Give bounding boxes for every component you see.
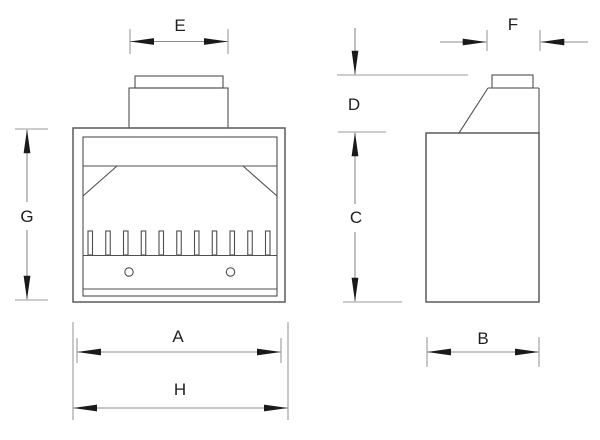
- front-right-throat-diagonal: [243, 166, 277, 196]
- grate-bar: [106, 231, 111, 255]
- dimension-c: C: [338, 132, 402, 302]
- dimension-label-e: E: [174, 16, 185, 35]
- grate-bar: [88, 231, 93, 255]
- dimension-label-b: B: [477, 329, 488, 348]
- front-chimney-cap: [135, 76, 223, 88]
- dimension-b: B: [427, 329, 539, 367]
- dimension-f: F: [440, 15, 588, 51]
- grate-bar: [212, 231, 217, 255]
- grate-bar: [248, 231, 253, 255]
- side-throat-slope: [459, 88, 488, 133]
- dimension-a: A: [73, 322, 288, 420]
- side-view: [426, 75, 539, 302]
- grate-bar: [141, 231, 146, 255]
- grate-bar: [230, 231, 235, 255]
- dimension-d: D: [337, 28, 468, 114]
- front-left-throat-diagonal: [83, 166, 117, 196]
- dimension-h: H: [74, 380, 288, 408]
- front-grate-bars: [88, 231, 270, 255]
- dimension-label-d: D: [348, 95, 360, 114]
- front-inner-body: [83, 137, 277, 296]
- fireplace-two-view-drawing: E G A H F D C: [0, 0, 600, 440]
- dimensional-drawing-canvas: E G A H F D C: [0, 0, 600, 440]
- grate-bar: [266, 231, 271, 255]
- dimension-g: G: [15, 129, 48, 300]
- grate-bar: [124, 231, 129, 255]
- dimension-label-g: G: [20, 207, 33, 226]
- front-chimney-flue: [129, 88, 228, 128]
- dimension-label-a: A: [172, 327, 184, 346]
- front-view: [73, 76, 285, 302]
- grate-bar: [159, 231, 164, 255]
- dimension-label-f: F: [508, 15, 518, 34]
- front-air-hole-left: [125, 268, 133, 276]
- grate-bar: [195, 231, 200, 255]
- grate-bar: [177, 231, 182, 255]
- front-air-hole-right: [226, 268, 234, 276]
- side-body: [426, 133, 539, 302]
- side-chimney-cap: [492, 75, 533, 88]
- dimension-label-h: H: [174, 380, 186, 399]
- dimension-e: E: [130, 16, 228, 54]
- dimension-label-c: C: [350, 208, 362, 227]
- front-outer-body: [73, 128, 285, 302]
